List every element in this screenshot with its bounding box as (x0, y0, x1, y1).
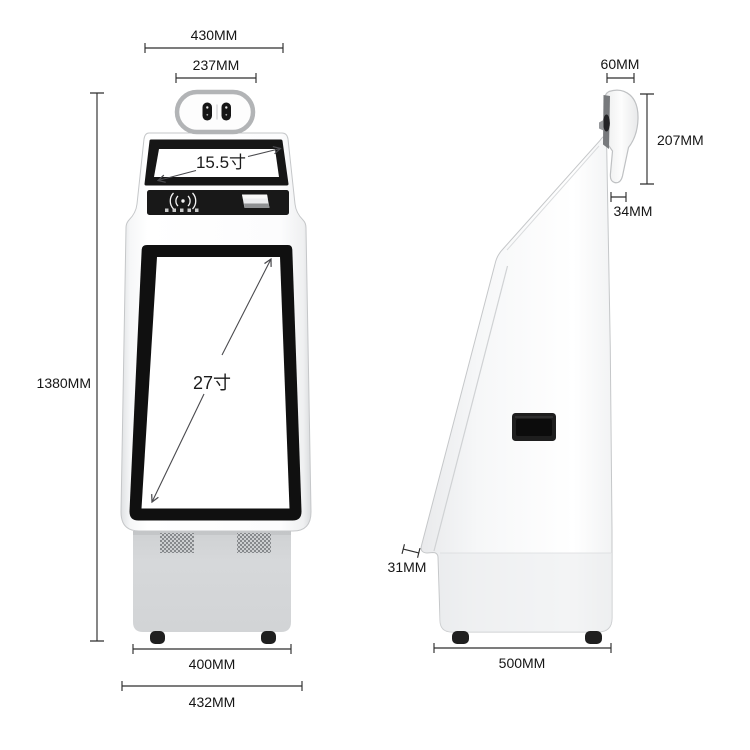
diagram-canvas: 15.5寸 27寸 (0, 0, 750, 750)
top-screen-size-label: 15.5寸 (196, 153, 246, 172)
side-base-cabinet (440, 553, 612, 632)
lens-glint (206, 106, 208, 108)
dim-label-237: 237MM (193, 57, 240, 73)
dim-total-height: 1380MM (37, 93, 104, 641)
dim-head-height: 207MM (640, 94, 704, 184)
dim-head-depth: 60MM (601, 56, 640, 83)
camera-module (177, 92, 253, 132)
side-foot-left (452, 631, 469, 644)
dim-label-400: 400MM (189, 656, 236, 672)
front-foot-left (150, 631, 165, 644)
dim-camera-width: 237MM (176, 57, 256, 83)
camera-lens-icon (603, 115, 610, 132)
sensor-nub (599, 120, 604, 131)
receipt-slot (242, 195, 270, 209)
speaker-grille-icon (160, 533, 194, 553)
dim-top-outer: 430MM (145, 27, 283, 53)
main-screen-size-label: 27寸 (193, 373, 231, 393)
dim-label-432: 432MM (189, 694, 236, 710)
lens-glint (206, 114, 208, 116)
side-view (421, 90, 638, 644)
dim-label-500: 500MM (499, 655, 546, 671)
dim-label-430: 430MM (191, 27, 238, 43)
front-view: 15.5寸 27寸 (121, 92, 311, 644)
camera-lens-icon (222, 103, 232, 121)
dim-base-depth: 500MM (434, 643, 611, 671)
lens-glint (225, 114, 227, 116)
camera-housing (177, 92, 253, 132)
printer-slot-side (512, 413, 556, 441)
dim-label-34: 34MM (614, 203, 653, 219)
side-foot-right (585, 631, 602, 644)
kiosk-dimension-diagram: 15.5寸 27寸 (0, 0, 750, 750)
dim-label-207: 207MM (657, 132, 704, 148)
dim-bottom-width: 432MM (122, 681, 302, 710)
lens-glint (225, 106, 227, 108)
dim-label-31: 31MM (388, 559, 427, 575)
dim-neck-width: 34MM (611, 192, 652, 219)
front-foot-right (261, 631, 276, 644)
dim-base-width: 400MM (133, 644, 291, 672)
camera-lens-icon (203, 103, 213, 121)
dim-label-60: 60MM (601, 56, 640, 72)
dim-label-1380: 1380MM (37, 375, 91, 391)
speaker-grille-icon (237, 533, 271, 553)
